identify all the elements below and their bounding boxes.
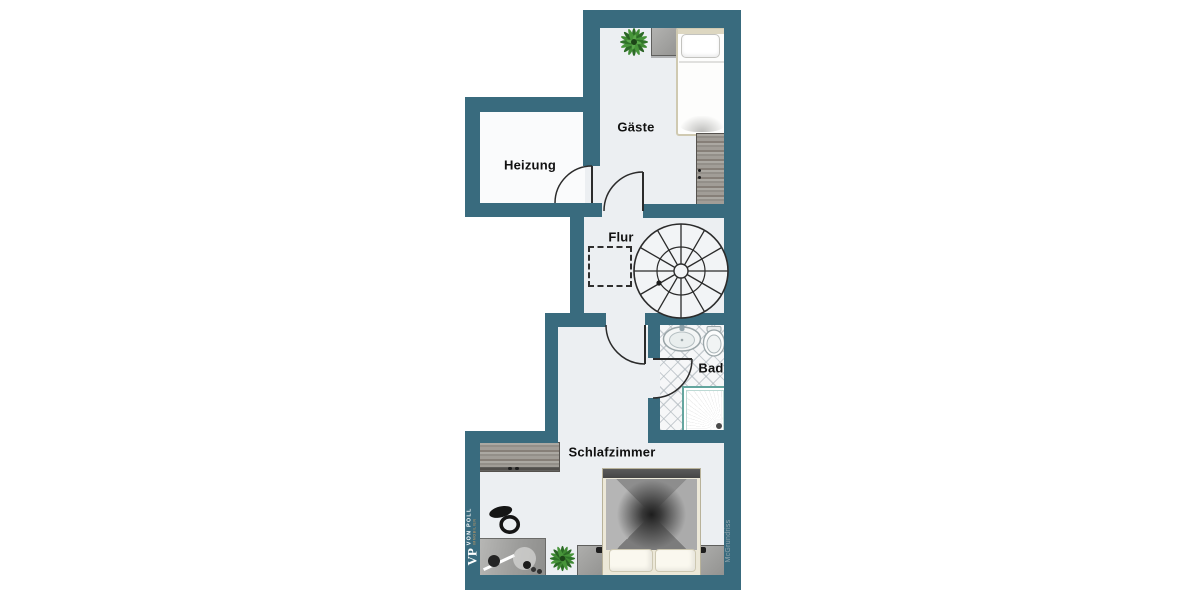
wardrobe-handle [515,467,519,470]
room-label-schlafzimmer: Schlafzimmer [569,445,656,460]
floor-plan: Gäste Heizung Flur Bad Schlafzimmer VP V… [0,0,1200,600]
wall [645,313,741,325]
door-opening [648,358,660,398]
room-label-heizung: Heizung [504,158,556,173]
brand-monogram: VP [466,548,479,565]
bedroom-wardrobe [478,442,560,472]
wall [724,10,741,590]
shower [682,386,728,435]
shower-drain [716,423,722,429]
wall [570,217,584,314]
door-opening [606,313,645,327]
bed-pillow [681,34,720,58]
wall [648,398,660,431]
room-label-bad: Bad [698,361,723,376]
wardrobe-handle [508,467,512,470]
wardrobe-handle [698,169,701,172]
shaft-dashed-box [588,246,632,287]
bed-pillow [655,549,696,572]
door-opening [602,204,643,218]
wall [643,204,741,218]
wall [465,203,602,217]
wall [545,327,558,443]
room-floor-schlafzimmer-arm [558,327,648,443]
bed-pillow [609,549,653,572]
wardrobe-handle [698,176,701,179]
desk-gadget [523,561,531,569]
wall [465,97,480,217]
single-bed [676,27,728,136]
wall [465,575,741,590]
room-label-flur: Flur [608,230,633,245]
brand-logo: VP VON POLL IMMOBILIEN [464,499,481,575]
plant-icon [549,545,576,572]
sink-icon [662,324,702,352]
wall [583,10,741,28]
wall [648,430,741,443]
toilet-icon [702,325,726,358]
wall [465,97,600,112]
room-label-gaeste: Gäste [617,120,654,135]
watermark: McGrundriss [725,514,737,568]
bed-footboard [603,469,700,478]
desk-gadget-small [531,567,536,572]
bed-blanket [606,479,697,550]
wall [583,10,600,166]
desk [477,538,546,578]
blanket-fold [679,61,725,63]
double-bed [602,468,701,577]
desk-corner-item [537,569,542,574]
office-chair [489,501,525,539]
desk-lamp-base [488,555,500,567]
blanket-foot-shade [680,116,724,132]
wall [648,325,660,358]
brand-subtitle: IMMOBILIEN [474,507,477,545]
wall [545,313,606,327]
guest-nightstand [651,26,679,56]
plant-icon [619,27,649,57]
door-opening [584,166,600,204]
